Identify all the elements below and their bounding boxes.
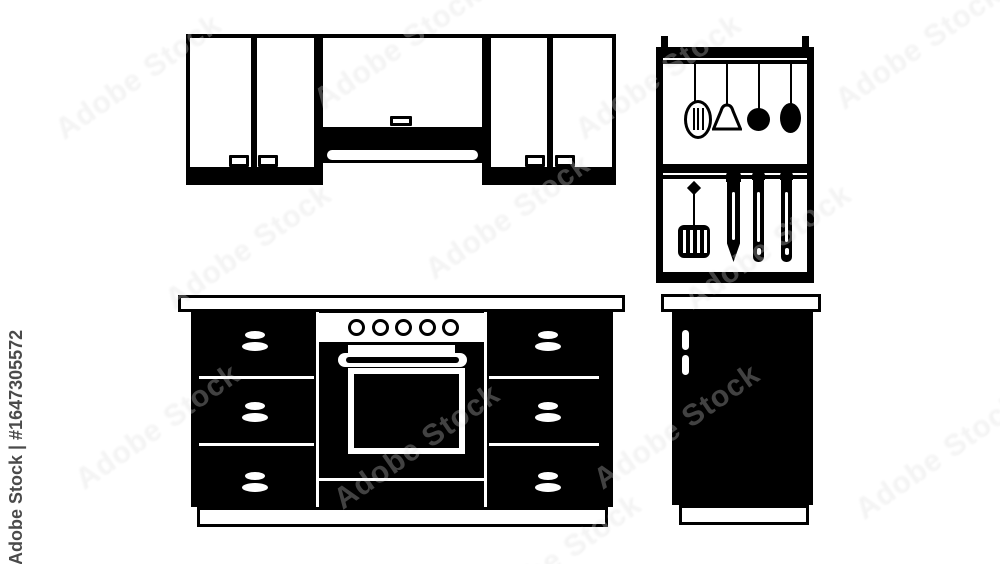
burner-knob (395, 319, 412, 336)
drawer-separator (489, 376, 599, 379)
cabinet-door-handle (682, 355, 689, 375)
drawer-handle (242, 402, 268, 424)
range-hood-section (318, 34, 487, 185)
cabinet-bottom-band (491, 167, 612, 181)
spoon-icon (780, 103, 801, 133)
hang-line (758, 64, 760, 110)
watermark-stock-id: Adobe Stock | #1647305572 (6, 265, 28, 564)
watermark-tile: Adobe Stock (828, 0, 1000, 117)
ladle-icon (747, 108, 770, 131)
drawer-handle (242, 331, 268, 353)
drawer-handle (242, 472, 268, 494)
stove-control-panel (319, 313, 484, 342)
stove-unit-body (191, 312, 613, 507)
door-handle (555, 155, 575, 167)
drawer-handle (535, 472, 561, 494)
range-hood-vent (323, 127, 482, 163)
strainer-icon (712, 103, 742, 131)
utensil-rack (656, 36, 814, 283)
side-cabinet-plinth (679, 505, 809, 525)
door-handle (258, 155, 278, 167)
door-divider (251, 38, 257, 167)
drawer-separator (489, 443, 599, 446)
whisk-icon (684, 100, 712, 139)
upper-wall-cabinet (186, 34, 616, 185)
stove-countertop (178, 295, 625, 312)
watermark-tile: Adobe Stock (848, 387, 1000, 526)
stock-illustration-kitchen-set: Adobe Stock Adobe Stock Adobe Stock Adob… (0, 0, 1000, 564)
burner-knob (372, 319, 389, 336)
drawer-separator (199, 376, 314, 379)
cabinet-door-handle (682, 330, 689, 350)
side-cabinet-countertop (661, 294, 821, 312)
hang-line (694, 64, 696, 102)
knife-icon (727, 178, 740, 262)
drawer-handle (535, 331, 561, 353)
stove-plinth (197, 507, 608, 527)
door-handle (229, 155, 249, 167)
hang-line (790, 64, 792, 105)
rack-frame (656, 47, 814, 283)
cabinet-bottom-band (190, 167, 314, 181)
drawer-handle (535, 402, 561, 424)
hang-line (726, 64, 728, 104)
door-divider (547, 38, 553, 167)
hang-line (693, 191, 695, 225)
upper-right-door-section (487, 34, 616, 185)
door-handle (525, 155, 545, 167)
oven-handle (338, 353, 467, 367)
spatula-icon (678, 225, 710, 258)
hood-light-bar (327, 150, 478, 160)
oven-door-top (348, 345, 455, 353)
rack-hanging-rod (663, 60, 807, 64)
burner-knob (442, 319, 459, 336)
hood-handle (390, 116, 412, 126)
upper-left-door-section (186, 34, 318, 185)
stove-divider (484, 312, 487, 507)
drawer-separator (199, 443, 314, 446)
knife-icon (753, 176, 764, 262)
burner-knob (348, 319, 365, 336)
knife-icon (781, 176, 792, 262)
side-cabinet-body (672, 312, 813, 505)
stove-bottom-line (319, 478, 484, 481)
oven-door-window (348, 368, 465, 454)
burner-knob (419, 319, 436, 336)
